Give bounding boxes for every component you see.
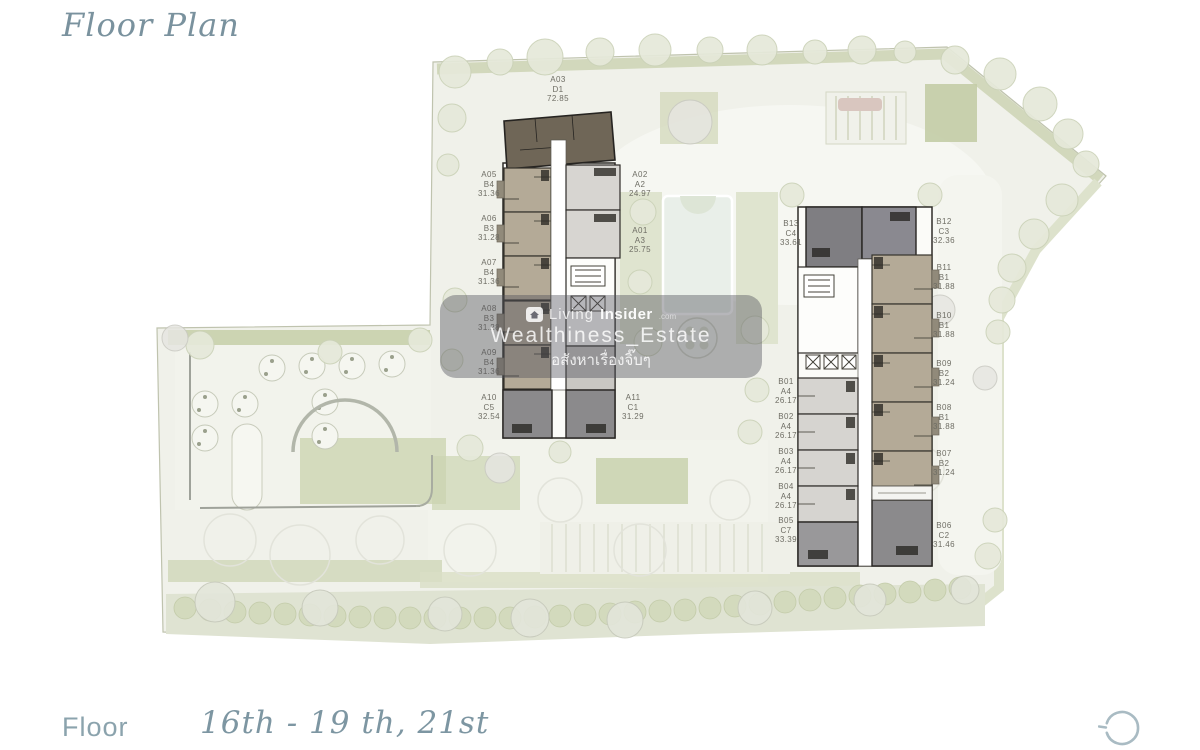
unit-b13-block xyxy=(806,207,862,267)
green-bed xyxy=(925,84,977,142)
brand-prefix: Living xyxy=(549,306,594,323)
unit-label-b04: B04A426.17 xyxy=(775,482,797,511)
brand-tld: .com xyxy=(659,312,676,321)
unit-label-b05: B05C733.39 xyxy=(775,516,797,545)
unit-label-b12: B12C332.36 xyxy=(933,217,955,246)
home-icon xyxy=(526,307,543,323)
unit-label-b03: B03A426.17 xyxy=(775,447,797,476)
floor-value: 16th - 19 th, 21st xyxy=(200,705,489,741)
unit-label-a11: A11C131.29 xyxy=(622,393,644,422)
unit-label-b06: B06C231.46 xyxy=(933,521,955,550)
watermark-account: Wealthiness_Estate xyxy=(440,324,762,348)
cabana-table xyxy=(838,98,882,111)
floor-label: Floor xyxy=(62,712,129,743)
brand-suffix: Insider xyxy=(600,306,653,323)
open-circle-icon xyxy=(1098,706,1142,750)
unit-label-a01: A01A325.75 xyxy=(629,226,651,255)
building-a xyxy=(497,112,620,438)
unit-label-b01: B01A426.17 xyxy=(775,377,797,406)
unit-b06-block xyxy=(872,500,932,566)
unit-label-a07: A07B431.36 xyxy=(478,258,500,287)
green-bed xyxy=(420,572,860,588)
green-bed xyxy=(168,560,442,582)
green-bed xyxy=(596,458,688,504)
unit-label-a06: A06B331.28 xyxy=(478,214,500,243)
unit-label-a03: A03D172.85 xyxy=(547,75,569,104)
unit-label-b07: B07B231.24 xyxy=(933,449,955,478)
unit-b05-block xyxy=(798,522,858,566)
unit-label-a02: A02A224.97 xyxy=(629,170,651,199)
unit-label-b10: B10B131.88 xyxy=(933,311,955,340)
floor-plan-page: Floor Plan xyxy=(0,0,1200,750)
watermark-brand: LivingInsider.com xyxy=(440,306,762,323)
unit-label-b13: B13C433.61 xyxy=(780,219,802,248)
watermark: LivingInsider.com Wealthiness_Estate อสั… xyxy=(440,295,762,378)
rooftop-deck xyxy=(826,92,906,144)
unit-label-a05: A05B431.36 xyxy=(478,170,500,199)
watermark-thai-tagline: อสังหาเรื่องจิ๊บๆ xyxy=(440,348,762,372)
unit-label-b09: B09B231.24 xyxy=(933,359,955,388)
unit-label-b11: B11B131.88 xyxy=(933,263,955,292)
building-b xyxy=(798,207,939,566)
corridor-b xyxy=(858,259,872,566)
unit-label-b08: B08B131.88 xyxy=(933,403,955,432)
unit-label-a10: A10C532.54 xyxy=(478,393,500,422)
long-bench xyxy=(232,424,262,510)
unit-label-b02: B02A426.17 xyxy=(775,412,797,441)
timber-deck xyxy=(540,522,790,574)
